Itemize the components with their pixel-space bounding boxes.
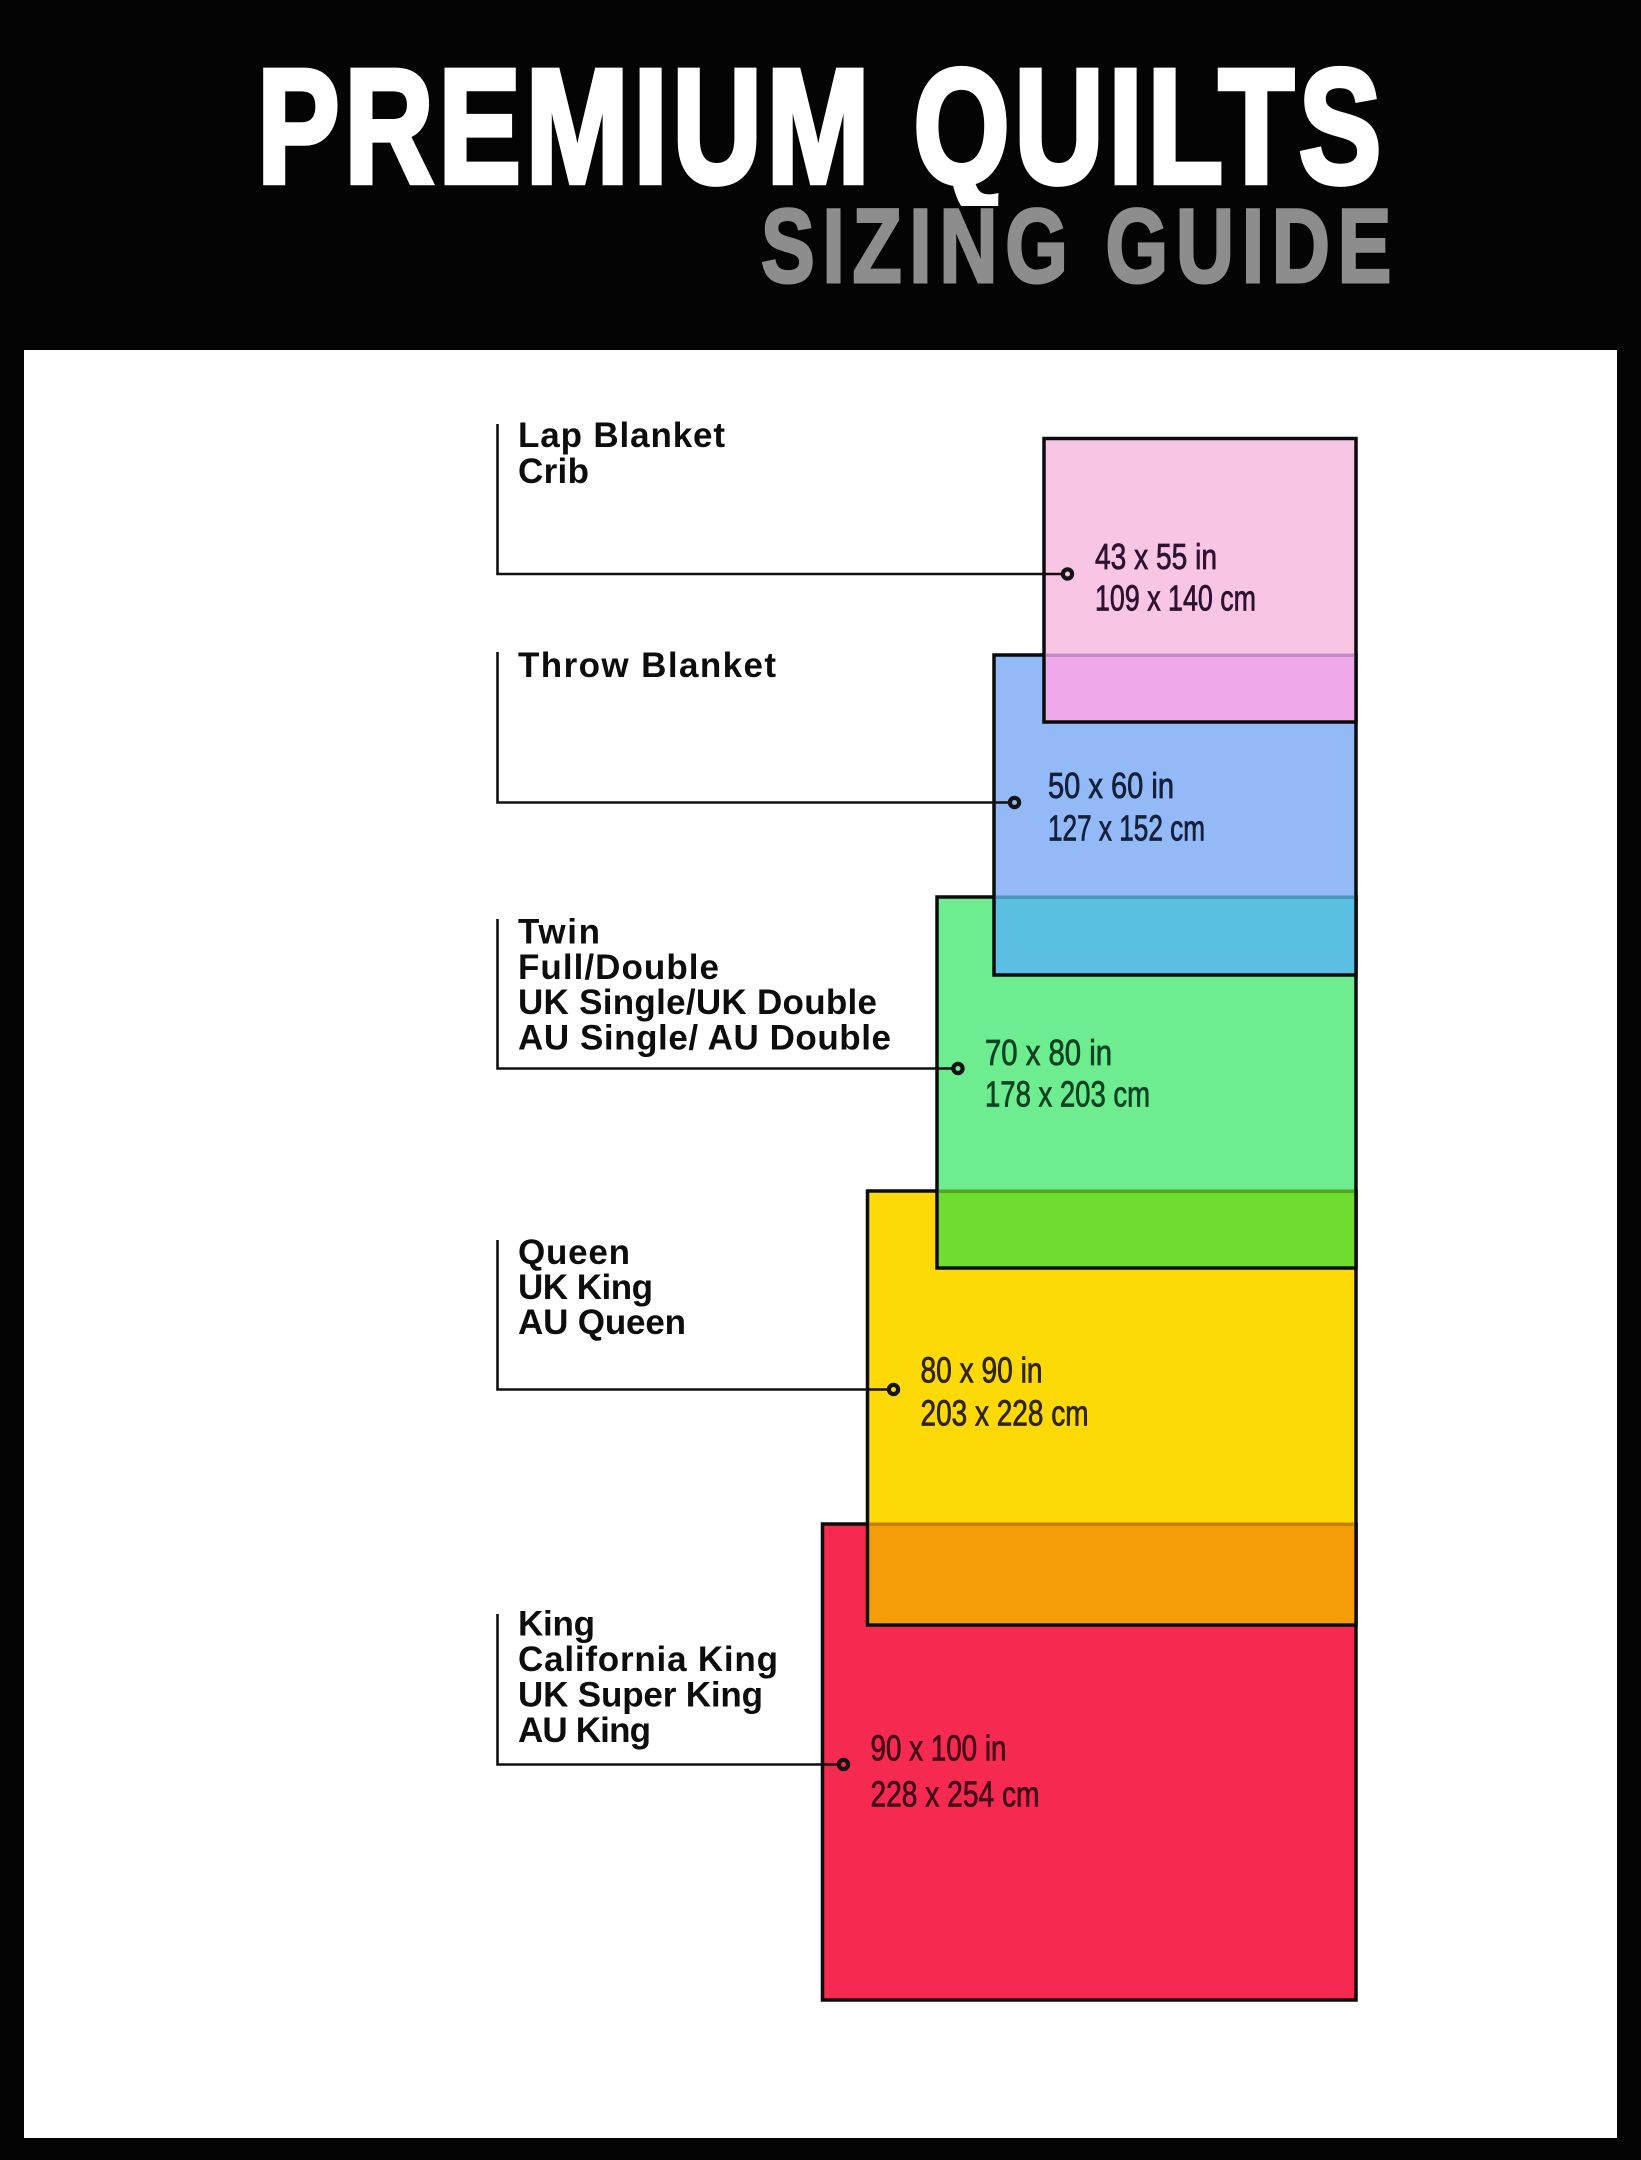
svg-text:109 x 140 cm: 109 x 140 cm bbox=[1095, 578, 1256, 619]
svg-text:UK Super King: UK Super King bbox=[518, 1676, 763, 1715]
svg-text:King: King bbox=[518, 1605, 595, 1644]
svg-text:43 x 55 in: 43 x 55 in bbox=[1095, 536, 1217, 577]
svg-text:UK King: UK King bbox=[518, 1268, 653, 1307]
svg-text:50 x 60 in: 50 x 60 in bbox=[1048, 765, 1174, 806]
svg-text:70 x 80 in: 70 x 80 in bbox=[985, 1032, 1112, 1073]
svg-text:Throw Blanket: Throw Blanket bbox=[518, 646, 776, 685]
svg-text:Lap Blanket: Lap Blanket bbox=[518, 416, 725, 455]
svg-text:90 x 100 in: 90 x 100 in bbox=[871, 1728, 1007, 1769]
svg-text:Crib: Crib bbox=[518, 452, 589, 491]
svg-text:127 x 152 cm: 127 x 152 cm bbox=[1048, 808, 1205, 849]
svg-text:SIZING GUIDE: SIZING GUIDE bbox=[761, 188, 1399, 305]
svg-text:178 x 203 cm: 178 x 203 cm bbox=[985, 1074, 1150, 1115]
svg-text:AU King: AU King bbox=[518, 1711, 651, 1750]
svg-text:Queen: Queen bbox=[518, 1233, 630, 1272]
svg-text:UK Single/UK Double: UK Single/UK Double bbox=[518, 983, 877, 1022]
svg-text:AU Single/ AU Double: AU Single/ AU Double bbox=[518, 1019, 891, 1058]
svg-text:80 x 90 in: 80 x 90 in bbox=[921, 1350, 1043, 1391]
svg-text:AU Queen: AU Queen bbox=[518, 1303, 686, 1342]
svg-text:203 x 228 cm: 203 x 228 cm bbox=[921, 1393, 1089, 1434]
svg-text:228 x 254 cm: 228 x 254 cm bbox=[871, 1774, 1040, 1815]
svg-text:Twin: Twin bbox=[518, 913, 600, 952]
svg-text:California King: California King bbox=[518, 1640, 778, 1679]
svg-text:Full/Double: Full/Double bbox=[518, 948, 719, 987]
